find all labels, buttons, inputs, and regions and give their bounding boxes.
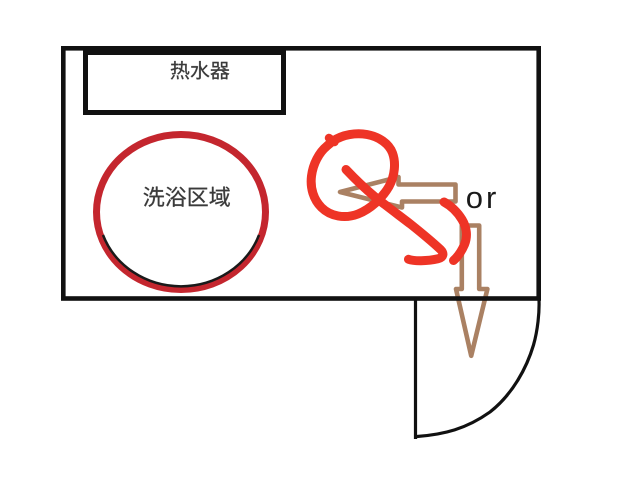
svg-text:or: or bbox=[466, 180, 500, 215]
